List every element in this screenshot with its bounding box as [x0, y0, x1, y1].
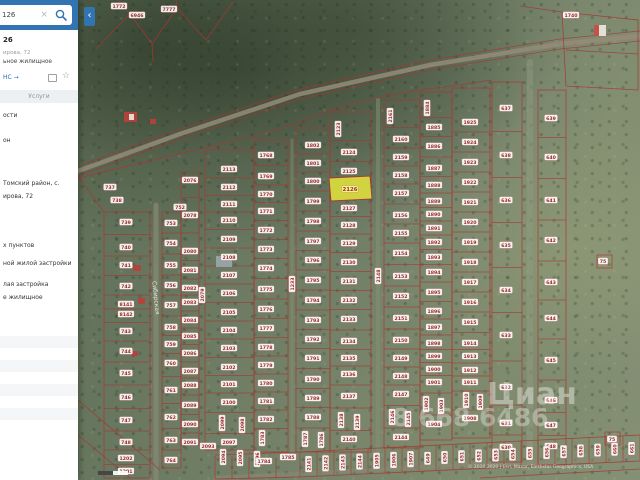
parcel-label[interactable]: 1917 [462, 279, 478, 286]
parcel-label[interactable]: 753 [164, 220, 177, 227]
parcel-label[interactable]: 1795 [305, 277, 321, 284]
parcel-label[interactable]: 1889 [426, 198, 442, 205]
parcel-label[interactable]: 2150 [393, 337, 409, 344]
parcel-label[interactable]: 2148 [375, 268, 382, 284]
parcel-label[interactable]: 2140 [341, 436, 357, 443]
parcel-label[interactable]: 636 [499, 197, 512, 204]
parcel-label[interactable]: 2094 [220, 449, 227, 465]
parcel-label[interactable]: 657 [560, 445, 567, 458]
parcel-label[interactable]: 2106 [221, 290, 237, 297]
parcel-label[interactable]: 2089 [182, 402, 198, 409]
parcel-label[interactable]: 2083 [182, 299, 198, 306]
parcel-label[interactable]: 2139 [354, 414, 361, 430]
parcel-label[interactable]: 1892 [426, 239, 442, 246]
parcel-label[interactable]: 1887 [426, 165, 442, 172]
svg-text:1788: 1788 [306, 415, 319, 421]
parcel-label[interactable]: 645 [544, 357, 557, 364]
parcel-label[interactable]: 2159 [393, 154, 409, 161]
svg-text:1890: 1890 [427, 212, 441, 218]
parcel-label[interactable]: 653 [492, 448, 499, 461]
svg-text:1897: 1897 [427, 325, 440, 331]
parcel-label[interactable]: 737 [103, 184, 116, 191]
parcel-label[interactable]: 75 [607, 436, 617, 443]
svg-text:1901: 1901 [427, 380, 440, 386]
parcel-label[interactable]: 1769 [258, 173, 274, 180]
svg-text:1921: 1921 [463, 200, 476, 206]
svg-text:2100: 2100 [222, 400, 236, 406]
collapse-panel-tab[interactable]: ‹ [84, 7, 95, 26]
svg-text:2131: 2131 [342, 279, 355, 285]
parcel-label[interactable]: 2099 [219, 415, 226, 431]
parcel-label[interactable]: 2142 [322, 455, 329, 471]
svg-text:1776: 1776 [259, 307, 273, 313]
parcel-label[interactable]: 1895 [426, 289, 442, 296]
parcel-label[interactable]: 2087 [182, 368, 198, 375]
svg-text:2132: 2132 [342, 298, 355, 304]
parcel-label[interactable]: 1779 [258, 362, 274, 369]
parcel-label[interactable]: 764 [164, 457, 177, 464]
parcel-label[interactable]: 1770 [258, 191, 274, 198]
parcel-label[interactable]: 649 [424, 452, 431, 465]
parcel-label[interactable]: 1740 [563, 12, 579, 19]
parcel-label[interactable]: 1793 [305, 317, 321, 324]
parcel-label[interactable]: 2157 [393, 190, 409, 197]
parcel-label[interactable]: 1796 [305, 257, 321, 264]
parcel-label[interactable]: 1799 [305, 198, 321, 205]
parcel-label[interactable]: 1901 [426, 379, 442, 386]
svg-text:2101: 2101 [222, 382, 235, 388]
parcel-label[interactable]: 754 [164, 240, 177, 247]
parcel-label[interactable]: 1891 [426, 225, 442, 232]
parcel-label[interactable]: 1918 [462, 259, 478, 266]
star-icon[interactable]: ☆ [62, 71, 70, 81]
copy-icon[interactable] [48, 74, 57, 82]
parcel-number-title: 26 [3, 36, 13, 44]
street-name: Сибирская [150, 281, 161, 316]
svg-text:2080: 2080 [183, 249, 197, 255]
svg-text:644: 644 [546, 316, 557, 322]
svg-text:2107: 2107 [222, 273, 235, 279]
svg-text:1893: 1893 [427, 255, 440, 261]
parcel-label[interactable]: 1921 [462, 199, 478, 206]
svg-text:1786: 1786 [319, 433, 325, 447]
svg-text:75: 75 [609, 437, 616, 443]
parcel-label[interactable]: 2147 [393, 391, 409, 398]
parcel-label[interactable]: 756 [164, 282, 177, 289]
parcel-label[interactable]: 1916 [462, 299, 478, 306]
service-item[interactable]: ости [3, 112, 17, 119]
svg-text:650: 650 [442, 452, 448, 463]
parcel-label[interactable]: 2161 [387, 108, 394, 124]
parcel-label[interactable]: 1798 [305, 218, 321, 225]
parcel-label[interactable]: 2088 [182, 382, 198, 389]
clear-search-icon[interactable]: × [40, 9, 48, 21]
parcel-label[interactable]: 2144 [393, 434, 409, 441]
parcel-label[interactable]: 1794 [305, 297, 321, 304]
svg-text:2158: 2158 [394, 173, 407, 179]
parcel-label[interactable]: 1776 [258, 306, 274, 313]
svg-text:2109: 2109 [222, 237, 235, 243]
parcel-label[interactable]: 1924 [462, 139, 478, 146]
parcel-label[interactable]: 2131 [341, 278, 357, 285]
parcel-label[interactable]: 650 [441, 451, 448, 464]
parcel-label[interactable]: 2103 [221, 345, 237, 352]
svg-text:2126: 2126 [342, 187, 357, 193]
svg-text:2129: 2129 [342, 241, 355, 247]
parcel-label[interactable]: 2126 [342, 186, 358, 193]
parcel-label[interactable]: 2155 [393, 230, 409, 237]
parcel-label[interactable]: 2148 [393, 373, 409, 380]
parcel-label[interactable]: 1906 [390, 452, 397, 468]
parcel-label[interactable]: 659 [594, 443, 601, 456]
parcel-label[interactable]: 635 [499, 242, 512, 249]
parcel-label[interactable]: 652 [475, 449, 482, 462]
parcel-label[interactable]: 1772 [258, 227, 274, 234]
svg-text:1771: 1771 [259, 209, 272, 215]
svg-text:756: 756 [166, 283, 177, 289]
parcel-label[interactable]: 2135 [341, 355, 357, 362]
svg-text:1779: 1779 [259, 363, 272, 369]
svg-text:2137: 2137 [342, 394, 355, 400]
parcel-label[interactable]: 2134 [341, 338, 357, 345]
parcel-label[interactable]: 2152 [393, 293, 409, 300]
parcel-label[interactable]: 8142 [118, 311, 134, 318]
skeleton-row [0, 360, 78, 372]
parcel-label[interactable]: 1781 [258, 398, 274, 405]
parcel-label[interactable]: 641 [544, 197, 557, 204]
parcel-label[interactable]: 1768 [258, 152, 274, 159]
parcel-label[interactable]: 2109 [221, 236, 237, 243]
parcel-label[interactable]: 744 [119, 348, 132, 355]
parcel-label[interactable]: 1913 [462, 353, 478, 360]
parcel-label[interactable]: 1912 [462, 367, 478, 374]
svg-text:639: 639 [546, 116, 556, 122]
svg-text:1892: 1892 [427, 240, 440, 246]
parcel-label[interactable]: 2130 [341, 259, 357, 266]
parcel-label[interactable]: 2078 [182, 212, 198, 219]
parcel-label[interactable]: 758 [164, 324, 177, 331]
parcel-label[interactable]: 1782 [258, 416, 274, 423]
parcel-label[interactable]: 2158 [393, 172, 409, 179]
parcel-label[interactable]: 745 [119, 370, 132, 377]
svg-text:1900: 1900 [427, 367, 441, 373]
parcel-label[interactable]: 1896 [426, 308, 442, 315]
parcel-label[interactable]: 2113 [221, 166, 237, 173]
parcel-label[interactable]: 2080 [182, 248, 198, 255]
parcel-label[interactable]: 1801 [305, 160, 321, 167]
parcel-label[interactable]: 2084 [182, 317, 198, 324]
parcel-label[interactable]: 1774 [258, 265, 274, 272]
parcel-label[interactable]: 1202 [118, 455, 134, 462]
parcel-label[interactable]: 1784 [256, 458, 272, 465]
parcel-label[interactable]: 8141 [118, 301, 134, 308]
svg-text:2156: 2156 [394, 213, 408, 219]
parcel-label[interactable]: 743 [119, 328, 132, 335]
svg-text:758: 758 [166, 325, 176, 331]
parcel-label[interactable]: 640 [544, 154, 557, 161]
svg-text:1785: 1785 [281, 455, 294, 461]
svg-text:1775: 1775 [259, 287, 272, 293]
svg-text:641: 641 [546, 198, 556, 204]
parcel-label[interactable]: 656 [543, 446, 550, 459]
svg-text:1770: 1770 [259, 192, 273, 198]
parcel-label[interactable]: 2098 [239, 417, 246, 433]
parcel-label[interactable]: 639 [544, 115, 557, 122]
svg-text:1233: 1233 [290, 277, 296, 290]
svg-text:75: 75 [600, 259, 607, 265]
parcel-label[interactable]: 1915 [462, 319, 478, 326]
parcel-label[interactable]: 2138 [338, 412, 345, 428]
svg-text:1884: 1884 [425, 101, 431, 115]
parcel-label[interactable]: 1787 [302, 431, 309, 447]
parcel-label[interactable]: 1777 [258, 325, 274, 332]
parcel-label[interactable]: 2108 [221, 254, 237, 261]
parcel-label[interactable]: 2112 [221, 184, 237, 191]
svg-text:660: 660 [612, 444, 618, 455]
parcel-label[interactable]: 2141 [305, 456, 312, 472]
svg-text:1895: 1895 [427, 290, 440, 296]
parcel-label[interactable]: 1790 [305, 376, 321, 383]
parcel-label[interactable]: 2090 [182, 421, 198, 428]
parcel-label[interactable]: 1800 [305, 178, 321, 185]
svg-text:2087: 2087 [183, 369, 196, 375]
parcel-label[interactable]: 1920 [462, 219, 478, 226]
parcel-label[interactable]: 1785 [280, 454, 296, 461]
svg-text:1782: 1782 [259, 417, 272, 423]
parcel-label[interactable]: 1923 [462, 159, 478, 166]
parcel-label[interactable]: 759 [164, 341, 177, 348]
parcel-label[interactable]: 638 [499, 152, 512, 159]
parcel-address-sub: ирова, 72 [3, 50, 31, 56]
svg-text:2155: 2155 [394, 231, 407, 237]
svg-text:1780: 1780 [259, 381, 273, 387]
parcel-label[interactable]: 2124 [341, 149, 357, 156]
svg-text:2147: 2147 [394, 392, 407, 398]
svg-text:2154: 2154 [394, 251, 408, 257]
parcel-label[interactable]: 1772 [111, 3, 127, 10]
parcel-label[interactable]: 742 [119, 283, 132, 290]
road [78, 36, 640, 171]
parcel-label[interactable]: 2143 [339, 454, 346, 470]
svg-text:634: 634 [501, 288, 512, 294]
svg-text:1925: 1925 [463, 120, 476, 126]
parcel-label[interactable]: 1786 [318, 432, 325, 448]
parcel-label[interactable]: 2082 [182, 285, 198, 292]
svg-text:1894: 1894 [427, 270, 441, 276]
parcel-label[interactable]: 2085 [182, 333, 198, 340]
parcel-label[interactable]: 1893 [426, 254, 442, 261]
svg-text:2106: 2106 [222, 291, 236, 297]
parcel-label[interactable]: 1789 [305, 395, 321, 402]
search-box[interactable]: × [0, 5, 72, 25]
parcel-label[interactable]: 2123 [335, 121, 342, 137]
parcel-label[interactable]: 1802 [305, 142, 321, 149]
parcel-label[interactable]: 2105 [221, 309, 237, 316]
parcel-label[interactable]: 1900 [426, 366, 442, 373]
parcel-label[interactable]: 1775 [258, 286, 274, 293]
parcel-label[interactable]: 1922 [462, 179, 478, 186]
svg-text:2123: 2123 [336, 122, 342, 135]
parcel-label[interactable]: 2132 [341, 297, 357, 304]
parcel-label[interactable]: 1788 [305, 414, 321, 421]
parcel-label[interactable]: 2144 [356, 453, 363, 469]
parcel-label[interactable]: 1791 [305, 355, 321, 362]
svg-text:2143: 2143 [340, 456, 346, 469]
parcel-label[interactable]: 1899 [426, 353, 442, 360]
parcel-label[interactable]: 1783 [259, 430, 266, 446]
parcel-label[interactable]: 2086 [182, 350, 198, 357]
parcel-label[interactable]: 2102 [221, 364, 237, 371]
parcel-label[interactable]: 7777 [161, 6, 177, 13]
parcel-label[interactable]: 2081 [182, 267, 198, 274]
parcel-label[interactable]: 761 [164, 387, 177, 394]
parcel-label[interactable]: 2133 [341, 316, 357, 323]
parcel-label[interactable]: 1898 [426, 340, 442, 347]
parcel-label[interactable]: 2129 [341, 240, 357, 247]
parcel-label[interactable]: 1884 [424, 100, 431, 116]
parcel-label[interactable]: 2156 [393, 212, 409, 219]
svg-text:1889: 1889 [427, 199, 440, 205]
parcel-label[interactable]: 1925 [462, 119, 478, 126]
parcel-label[interactable]: 2149 [393, 355, 409, 362]
parcel-label[interactable]: 2128 [341, 222, 357, 229]
parcel-label[interactable]: 1905 [373, 453, 380, 469]
parcel-label[interactable]: 1797 [305, 238, 321, 245]
parcel-label[interactable]: 2100 [221, 399, 237, 406]
parcel-label[interactable]: 1778 [258, 344, 274, 351]
parcel-label[interactable]: 762 [164, 414, 177, 421]
parcel-label[interactable]: 2095 [237, 450, 244, 466]
details-link[interactable]: НС → [3, 74, 19, 81]
info-line: х пунктов [3, 242, 34, 249]
parcel-label[interactable]: 2151 [393, 315, 409, 322]
parcel-label[interactable]: 633 [499, 332, 512, 339]
parcel-boundary [566, 50, 638, 54]
parcel-label[interactable]: 2110 [221, 217, 237, 224]
parcel-label[interactable]: 760 [164, 360, 177, 367]
parcel-label[interactable]: 2127 [341, 205, 357, 212]
svg-text:2099: 2099 [220, 416, 226, 429]
parcel-label[interactable]: 2104 [221, 327, 237, 334]
parcel-label[interactable]: 748 [119, 439, 132, 446]
parcel-label[interactable]: 1919 [462, 239, 478, 246]
parcel-label[interactable]: 741 [119, 262, 132, 269]
parcel-label[interactable]: 2111 [221, 201, 237, 208]
parcel-label[interactable]: 2093 [200, 443, 216, 450]
search-icon[interactable] [54, 8, 68, 22]
parcel-label[interactable]: 660 [611, 443, 618, 456]
parcel-label[interactable]: 6946 [129, 12, 145, 19]
svg-text:1773: 1773 [259, 247, 272, 253]
parcel-label[interactable]: 738 [110, 197, 123, 204]
parcel-label[interactable]: 1911 [462, 379, 478, 386]
parcel-label[interactable]: 655 [526, 447, 533, 460]
svg-text:1924: 1924 [463, 140, 477, 146]
parcel-label[interactable]: 1233 [289, 276, 296, 292]
parcel-label[interactable]: 2091 [182, 439, 198, 446]
parcel-label[interactable]: 1890 [426, 211, 442, 218]
svg-text:1887: 1887 [427, 166, 440, 172]
svg-text:1769: 1769 [259, 174, 272, 180]
parcel-label[interactable]: 763 [164, 437, 177, 444]
parcel-label[interactable]: 1792 [305, 336, 321, 343]
parcel-label[interactable]: 2101 [221, 381, 237, 388]
svg-text:1898: 1898 [427, 341, 440, 347]
svg-text:1906: 1906 [391, 453, 397, 467]
skeleton-row [0, 384, 78, 396]
parcel-label[interactable]: 1780 [258, 380, 274, 387]
parcel-label[interactable]: 757 [164, 302, 177, 309]
svg-text:657: 657 [561, 447, 567, 457]
parcel-label[interactable]: 637 [499, 105, 512, 112]
svg-text:1202: 1202 [119, 456, 132, 462]
parcel-label[interactable]: 1897 [426, 324, 442, 331]
parcel-label[interactable]: 658 [577, 444, 584, 457]
parcel-label[interactable]: 643 [544, 279, 557, 286]
parcel-label[interactable]: 1907 [407, 451, 414, 467]
address-line: Томский район, с. [3, 180, 60, 187]
parcel-label[interactable]: 1914 [462, 340, 478, 347]
parcel-label[interactable]: 739 [119, 219, 132, 226]
parcel-label[interactable]: 2097 [221, 439, 237, 446]
parcel-label[interactable]: 651 [458, 450, 465, 463]
parcel-label[interactable]: 634 [499, 287, 512, 294]
svg-text:753: 753 [166, 221, 176, 227]
parcel-label[interactable]: 2153 [393, 273, 409, 280]
svg-text:748: 748 [121, 440, 131, 446]
parcel-label[interactable]: 2079 [199, 287, 206, 303]
parcel-label[interactable]: 747 [119, 417, 132, 424]
parcel-label[interactable]: 1894 [426, 269, 442, 276]
svg-text:1907: 1907 [408, 453, 414, 466]
svg-text:740: 740 [121, 245, 132, 251]
svg-text:744: 744 [121, 349, 132, 355]
parcel-label[interactable]: 2107 [221, 272, 237, 279]
parcel-label[interactable]: 2125 [341, 168, 357, 175]
svg-text:2149: 2149 [394, 356, 407, 362]
parcel-label[interactable]: 75 [598, 258, 608, 265]
parcel-label[interactable]: 746 [119, 394, 132, 401]
svg-text:763: 763 [166, 438, 176, 444]
parcel-label[interactable]: 642 [544, 237, 557, 244]
parcel-label[interactable]: 752 [173, 204, 186, 211]
service-item[interactable]: он [3, 137, 11, 144]
parcel-label[interactable]: 1773 [258, 246, 274, 253]
parcel-label[interactable]: 661 [628, 442, 635, 455]
parcel-label[interactable]: 644 [544, 315, 557, 322]
svg-text:2124: 2124 [342, 150, 356, 156]
parcel-label[interactable]: 2076 [182, 177, 198, 184]
svg-text:2090: 2090 [183, 422, 197, 428]
parcel-label[interactable]: 2137 [341, 393, 357, 400]
parcel-label[interactable]: 654 [509, 448, 516, 461]
parcel-label[interactable]: 1888 [426, 182, 442, 189]
services-section-header: Услуги [0, 90, 78, 103]
parcel-label[interactable]: 740 [119, 244, 132, 251]
parcel-label[interactable]: 1885 [426, 124, 442, 131]
parcel-label[interactable]: 2136 [341, 371, 357, 378]
parcel-label[interactable]: 2154 [393, 250, 409, 257]
svg-text:739: 739 [121, 220, 131, 226]
svg-text:2141: 2141 [306, 458, 312, 471]
svg-text:762: 762 [166, 415, 176, 421]
cadastral-map[interactable]: 7397407417428141814274374474574674774812… [0, 0, 640, 480]
parcel-label[interactable]: 1886 [426, 143, 442, 150]
svg-text:2113: 2113 [222, 167, 235, 173]
parcel-label[interactable]: 1771 [258, 208, 274, 215]
parcel-label[interactable]: 2160 [393, 136, 409, 143]
parcel-label[interactable]: 755 [164, 262, 177, 269]
